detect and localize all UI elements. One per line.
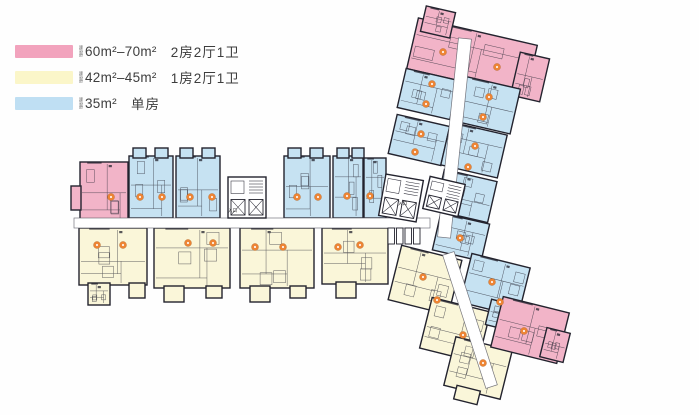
floor-plan-svg: 入口入口	[0, 0, 699, 415]
unit-block-yellow	[290, 286, 306, 298]
unit-block-blue	[202, 148, 215, 158]
unit-number-marker	[136, 193, 143, 200]
unit-block-blue	[310, 148, 323, 158]
unit-number-marker	[419, 273, 426, 280]
unit-number-marker	[471, 142, 478, 149]
unit-number-marker	[343, 192, 350, 199]
unit-block-blue	[352, 148, 364, 158]
unit-block-blue	[284, 156, 330, 218]
unit-number-marker	[293, 193, 300, 200]
unit-block-yellow	[88, 283, 110, 305]
unit-block-yellow	[206, 286, 222, 298]
balcony-comb	[388, 228, 420, 244]
unit-number-marker	[459, 331, 466, 338]
unit-number-marker	[488, 278, 495, 285]
unit-number-marker	[411, 148, 418, 155]
unit-block-yellow	[79, 228, 147, 285]
unit-number-marker	[428, 80, 435, 87]
unit-block-pink	[80, 162, 128, 225]
unit-block-blue	[176, 156, 220, 218]
unit-number-marker	[479, 113, 486, 120]
unit-number-marker	[279, 243, 286, 250]
unit-number-marker	[334, 243, 341, 250]
unit-block-blue	[333, 156, 363, 218]
unit-block-yellow	[240, 228, 314, 288]
page-background: 建筑面积 60m²–70m² 2房2厅1卫 建筑面积 42m²–45m² 1房2…	[0, 0, 699, 415]
unit-block-blue	[388, 114, 450, 165]
unit-number-marker	[208, 193, 215, 200]
unit-number-marker	[366, 192, 373, 199]
unit-block-blue	[155, 148, 168, 158]
unit-block-blue	[337, 148, 349, 158]
unit-number-marker	[439, 48, 446, 55]
unit-block-yellow	[322, 228, 388, 284]
elevator-core	[423, 176, 466, 216]
unit-number-marker	[479, 359, 486, 366]
unit-number-marker	[422, 100, 429, 107]
unit-block-blue	[180, 148, 193, 158]
elevator-core	[379, 174, 424, 222]
unit-number-marker	[456, 234, 463, 241]
unit-number-marker	[485, 93, 492, 100]
unit-block-yellow	[336, 282, 356, 298]
unit-number-marker	[158, 193, 165, 200]
unit-number-marker	[493, 63, 500, 70]
unit-number-marker	[464, 163, 471, 170]
unit-number-marker	[417, 130, 424, 137]
unit-number-marker	[119, 241, 126, 248]
unit-number-marker	[107, 193, 114, 200]
unit-number-marker	[93, 241, 100, 248]
unit-block-blue	[288, 148, 301, 158]
unit-number-marker	[520, 327, 527, 334]
unit-number-marker	[209, 239, 216, 246]
unit-number-marker	[186, 193, 193, 200]
unit-block-blue	[129, 156, 173, 218]
unit-block-yellow	[129, 283, 145, 298]
unit-block-yellow	[250, 286, 270, 302]
unit-number-marker	[496, 298, 503, 305]
unit-block-pink	[71, 186, 81, 210]
unit-number-marker	[251, 243, 258, 250]
unit-number-marker	[314, 193, 321, 200]
floor-plan: 入口入口	[0, 0, 699, 415]
unit-number-marker	[433, 296, 440, 303]
unit-block-yellow	[164, 286, 184, 302]
unit-block-blue	[133, 148, 146, 158]
unit-block-yellow	[154, 228, 230, 288]
corridor	[74, 218, 430, 228]
unit-number-marker	[184, 239, 191, 246]
unit-number-marker	[356, 241, 363, 248]
